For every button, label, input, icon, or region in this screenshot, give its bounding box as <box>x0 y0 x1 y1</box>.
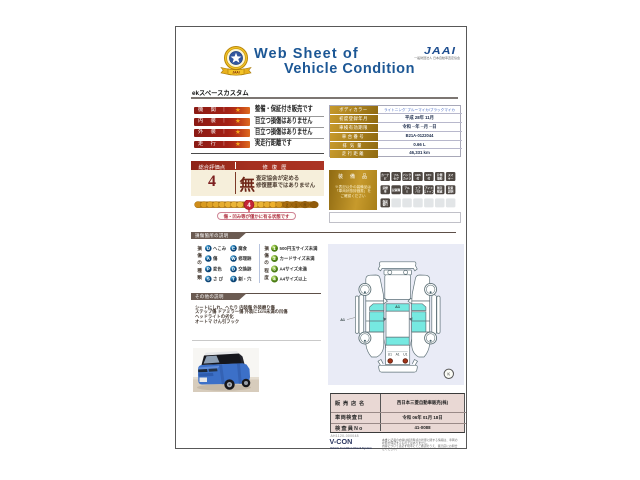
svg-text:ETC: ETC <box>426 173 431 177</box>
svg-text:取扱: 取扱 <box>447 186 453 190</box>
svg-text:ミ: ミ <box>405 190 408 194</box>
svg-text:腐食: 腐食 <box>238 245 247 252</box>
svg-text:4: 4 <box>247 202 251 209</box>
svg-text:エア: エア <box>415 186 421 190</box>
svg-text:D: D <box>232 267 235 272</box>
svg-text:変色: 変色 <box>213 266 222 273</box>
svg-text:さ び: さ び <box>213 276 224 283</box>
svg-text:アイド: アイド <box>424 186 432 190</box>
svg-text:説明: 説明 <box>447 190 453 194</box>
svg-text:バク: バク <box>415 190 421 194</box>
svg-text:A1: A1 <box>395 305 400 309</box>
svg-text:アル: アル <box>404 186 410 190</box>
svg-text:スマ: スマ <box>447 173 453 177</box>
svg-text:保証: 保証 <box>381 199 388 203</box>
svg-text:交換跡: 交換跡 <box>238 266 252 273</box>
svg-text:フル: フル <box>393 173 399 177</box>
svg-text:A4サイズ以上: A4サイズ以上 <box>280 276 308 283</box>
svg-text:U1: U1 <box>388 352 392 356</box>
svg-text:へこみ: へこみ <box>213 246 227 252</box>
svg-text:A4サイズ未満: A4サイズ未満 <box>280 266 308 273</box>
svg-text:電動: 電動 <box>437 176 443 180</box>
svg-text:付: 付 <box>416 176 419 180</box>
svg-text:ABS: ABS <box>415 173 421 177</box>
svg-text:車: 車 <box>383 190 386 194</box>
svg-text:付: 付 <box>427 176 430 180</box>
svg-text:衝突: 衝突 <box>436 186 443 190</box>
svg-text:JAAI: JAAI <box>232 71 239 75</box>
svg-text:R: R <box>303 202 306 207</box>
svg-text:軽減: 軽減 <box>437 190 443 194</box>
svg-text:カーナ: カーナ <box>381 173 389 177</box>
svg-text:片側: 片側 <box>436 173 443 177</box>
svg-text:バック: バック <box>402 173 410 177</box>
svg-text:K: K <box>447 372 450 377</box>
svg-text:傷: 傷 <box>212 255 218 262</box>
svg-text:ビ: ビ <box>383 176 386 180</box>
svg-text:記録簿: 記録簿 <box>392 188 400 192</box>
svg-text:A1: A1 <box>396 352 400 356</box>
svg-text:キー: キー <box>447 176 453 180</box>
svg-text:割・穴: 割・穴 <box>238 276 252 283</box>
svg-text:U1: U1 <box>403 352 407 356</box>
svg-text:セグ: セグ <box>393 176 399 180</box>
svg-text:書付: 書付 <box>382 203 388 207</box>
svg-text:カードサイズ未満: カードサイズ未満 <box>280 255 316 262</box>
svg-text:U: U <box>207 246 210 251</box>
svg-text:500円玉サイズ未満: 500円玉サイズ未満 <box>280 245 319 252</box>
svg-text:カメラ: カメラ <box>402 176 410 180</box>
svg-text:禁煙: 禁煙 <box>382 186 388 190</box>
svg-text:S: S <box>207 277 210 282</box>
svg-text:ストップ: ストップ <box>423 190 434 194</box>
svg-text:P: P <box>207 267 210 272</box>
svg-text:A1: A1 <box>340 318 345 322</box>
svg-text:修理跡: 修理跡 <box>237 255 252 262</box>
svg-text:T: T <box>232 277 235 282</box>
